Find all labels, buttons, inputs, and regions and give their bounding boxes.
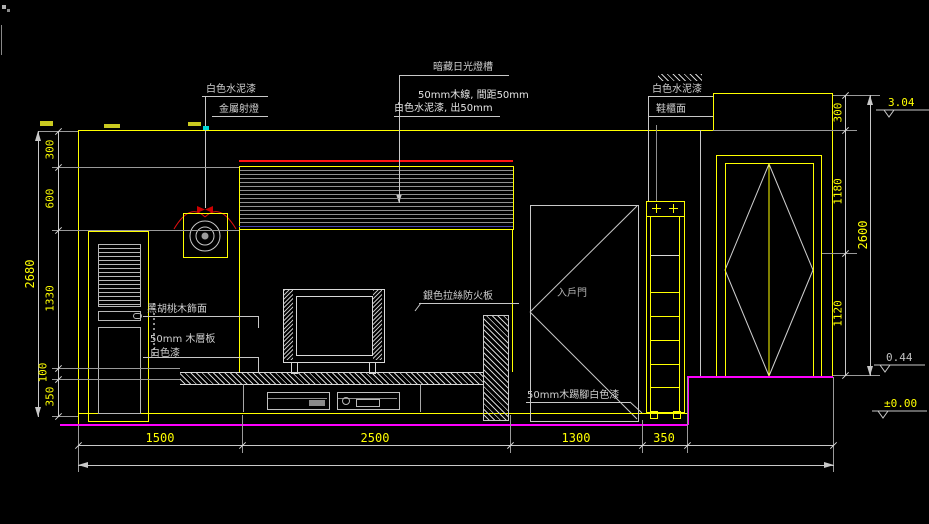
dim-left-overall-2680: 2680	[23, 249, 37, 299]
level-triangle-ceiling	[884, 110, 894, 117]
wood-slat-panel	[239, 166, 514, 230]
shoe-cabinet-shelf	[651, 316, 679, 317]
level-step-0.44: 0.44	[886, 351, 913, 364]
shoe-cabinet-extension-line	[656, 125, 657, 201]
shoe-cabinet-shelf	[651, 292, 679, 293]
ceiling-line	[78, 130, 713, 131]
label-leader	[399, 75, 400, 203]
corner-artifact-line	[1, 25, 2, 55]
label-skirting: 50mm木踢腳白色漆	[527, 390, 619, 401]
label-underline	[394, 116, 500, 117]
extension-line	[822, 253, 857, 254]
ac-body-panel	[98, 327, 141, 414]
hatch-artifact	[658, 74, 702, 81]
label-white-cement-out: 白色水泥漆, 出50mm	[394, 103, 493, 114]
left-wall-line	[78, 130, 79, 425]
tv-frame-texture-right	[373, 290, 382, 360]
extension-line	[510, 415, 511, 453]
level-ceiling-3.04: 3.04	[888, 96, 915, 109]
handle-cross	[673, 204, 674, 213]
shoe-cabinet-foot-left	[650, 411, 658, 419]
console-side-right	[420, 384, 421, 412]
ceiling-step-line	[713, 93, 714, 131]
fireproof-board-column	[483, 315, 509, 421]
shoe-cabinet-foot-right	[673, 411, 681, 419]
label-leader	[258, 357, 259, 372]
label-hidden-fluorescent: 暗藏日光燈槽	[433, 62, 493, 73]
label-underline	[399, 75, 509, 76]
label-underline	[526, 402, 630, 403]
raised-floor-line	[687, 376, 833, 378]
label-underline	[648, 116, 713, 117]
label-entry-door: 入戶門	[557, 288, 587, 299]
label-white-paint: 白色漆	[150, 348, 180, 359]
label-underline	[143, 316, 258, 317]
label-walnut-veneer: 黑胡桃木飾面	[147, 304, 207, 315]
label-fireproof-board: 銀色拉絲防火板	[423, 291, 493, 302]
label-white-cement-right: 白色水泥漆	[652, 84, 702, 95]
wood-shelf-band	[180, 372, 483, 385]
tiny-cyan-mark	[203, 126, 209, 130]
label-leader	[258, 316, 259, 328]
fluorescent-light-line	[239, 160, 513, 162]
av-device-2-knob	[342, 397, 350, 405]
dim-bottom-350: 350	[634, 431, 694, 445]
tiny-text-artifact	[188, 122, 201, 126]
dim-bottom-1300: 1300	[546, 431, 606, 445]
label-white-cement-left: 白色水泥漆	[206, 84, 256, 95]
cad-elevation-drawing: 白色水泥漆 金屬射燈 暗藏日光燈槽 50mm木線, 間距50mm 白色水泥漆, …	[0, 0, 929, 524]
panel-edge-left	[239, 230, 240, 372]
extension-line	[52, 230, 239, 231]
dim-bottom-1500: 1500	[130, 431, 190, 445]
panel-edge-right	[512, 230, 513, 372]
level-triangle-step	[880, 365, 890, 372]
label-shoe-cabinet-face: 鞋櫃面	[656, 104, 686, 115]
shoe-cabinet-inner-right	[679, 217, 680, 411]
handle-cross	[656, 204, 657, 213]
shoe-cabinet-shelf	[651, 387, 679, 388]
shoe-cabinet-shelf	[651, 364, 679, 365]
label-underline	[419, 303, 519, 304]
extension-line	[52, 167, 239, 168]
tiny-text-artifact	[104, 124, 120, 128]
dim-left-300: 300	[44, 125, 57, 175]
extension-line	[242, 415, 243, 453]
corner-artifact	[7, 9, 10, 12]
extension-line	[52, 368, 180, 369]
level-floor-0.00: ±0.00	[884, 397, 917, 410]
dim-line-right-outer	[870, 95, 871, 376]
extension-line	[52, 379, 180, 380]
dim-right-1120: 1120	[832, 289, 845, 339]
label-leader	[648, 96, 649, 201]
door-inner-frame	[725, 163, 814, 378]
shoe-cabinet-inner-left	[650, 217, 651, 411]
label-underline	[648, 96, 713, 97]
label-wood-shelf: 50mm 木層板	[150, 334, 215, 345]
shoe-cabinet-shelf	[651, 340, 679, 341]
floor-line	[60, 424, 688, 426]
fireboard-leader	[415, 303, 421, 311]
label-leader	[205, 96, 206, 208]
dim-line-bottom	[78, 445, 834, 446]
ac-grille	[98, 244, 141, 307]
dim-left-1330: 1330	[44, 274, 57, 324]
dim-right-overall-2600: 2600	[856, 210, 870, 260]
extension-line	[833, 377, 834, 472]
tv-screen	[296, 296, 373, 356]
ac-button	[133, 313, 142, 319]
right-ceiling-line	[713, 93, 833, 94]
dim-right-300: 300	[832, 88, 845, 138]
spotlight-box	[183, 213, 228, 258]
level-triangle-floor	[878, 411, 888, 418]
label-wood-strip-spec: 50mm木線, 間距50mm	[418, 90, 529, 101]
label-metal-spotlight: 金屬射燈	[219, 104, 259, 115]
dim-left-350: 350	[44, 372, 57, 422]
dim-bottom-2500: 2500	[345, 431, 405, 445]
dim-line-left-inner	[58, 131, 59, 417]
shoe-cabinet-shelf	[651, 255, 679, 256]
tv-frame-texture-left	[284, 290, 293, 360]
label-underline	[202, 96, 268, 97]
corner-artifact	[2, 5, 6, 9]
av-device-1-seam	[268, 398, 327, 399]
dim-line-right-inner	[845, 95, 846, 376]
label-underline	[212, 116, 268, 117]
dim-left-600: 600	[44, 174, 57, 224]
av-device-1-display	[309, 400, 325, 406]
console-side-left	[243, 384, 244, 412]
extension-line	[833, 375, 880, 376]
panel-bottom-accent	[239, 226, 513, 227]
wall-corner-line	[700, 130, 701, 377]
tiny-text-artifact	[40, 121, 53, 126]
av-device-2-tray	[356, 399, 380, 407]
dim-right-1180: 1180	[832, 167, 845, 217]
dim-line-bottom-overall	[78, 465, 834, 466]
